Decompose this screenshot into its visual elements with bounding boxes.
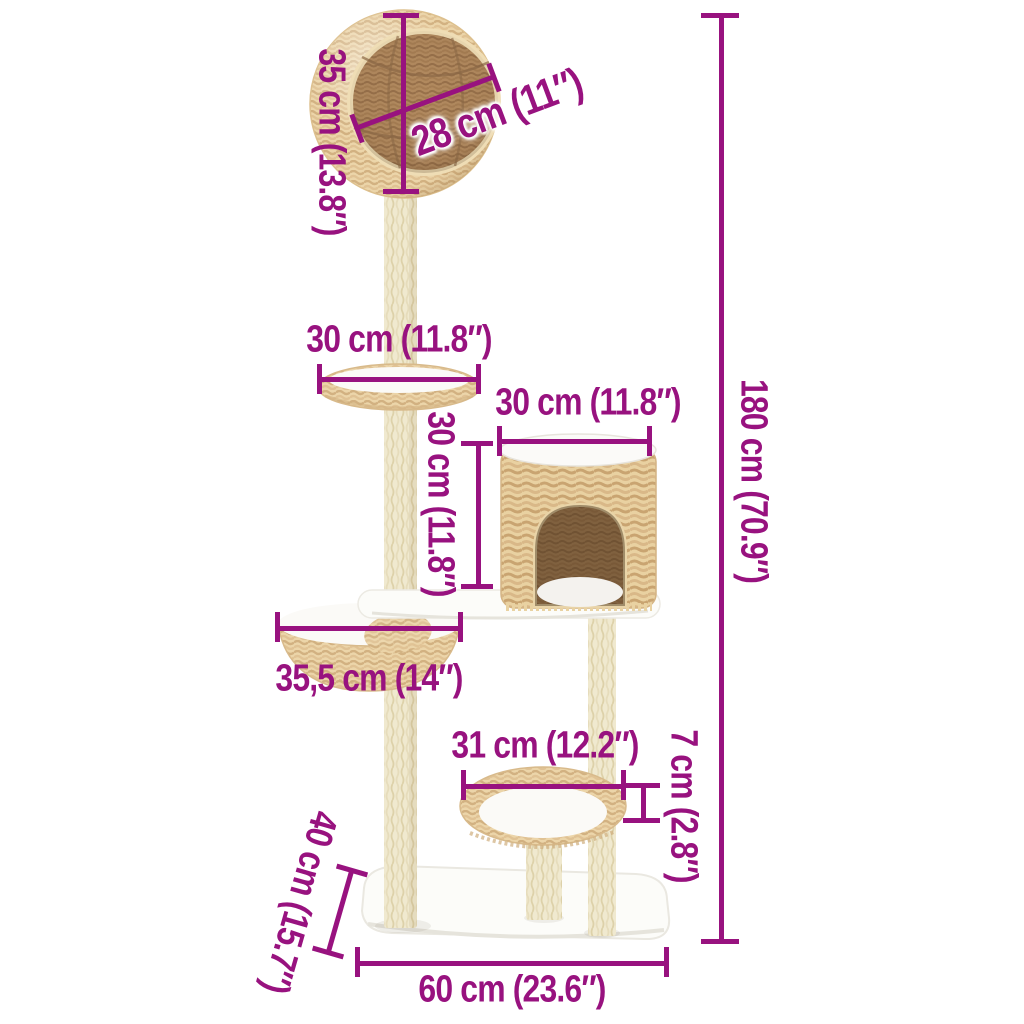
dimension-line	[463, 784, 624, 789]
dimension-tick	[317, 364, 322, 394]
dimension-tick	[664, 947, 669, 977]
cat-tree-illustration	[0, 0, 1024, 1024]
dimension-tick	[275, 612, 280, 642]
dimension-label-bottom-bed-height: 7 cm (2.8″)	[662, 729, 705, 882]
scratching-post-small	[526, 840, 562, 920]
dimension-line	[401, 15, 406, 193]
dimension-line	[500, 439, 650, 444]
dimension-tick	[701, 13, 739, 18]
dimension-tick	[623, 783, 660, 788]
dimension-tick	[647, 426, 652, 456]
dimension-tick	[355, 947, 360, 977]
dimension-line	[320, 377, 478, 382]
dimension-label-top-tray-width: 30 cm (11.8″)	[306, 319, 491, 362]
dimension-line	[641, 786, 646, 822]
product-dimension-diagram: 35 cm (13.8″) 28 cm (11″) 30 cm (11.8″) …	[0, 0, 1024, 1024]
bottom-bed	[460, 767, 626, 847]
dimension-line	[357, 961, 667, 966]
dimension-label-total-height: 180 cm (70.9″)	[732, 379, 775, 583]
dimension-tick	[461, 584, 493, 589]
dimension-tick	[383, 13, 419, 18]
dimension-tick	[623, 818, 660, 823]
dimension-tick	[701, 939, 739, 944]
dimension-line	[719, 15, 724, 943]
dimension-tick	[461, 441, 493, 446]
dimension-label-house-width: 30 cm (11.8″)	[495, 382, 680, 425]
dimension-tick	[497, 426, 502, 456]
top-tray-platform	[318, 364, 480, 410]
dimension-line	[476, 443, 481, 589]
dimension-label-basket-width: 35,5 cm (14″)	[275, 658, 462, 701]
dimension-label-ball-height: 35 cm (13.8″)	[310, 48, 353, 235]
dimension-label-bottom-bed-width: 31 cm (12.2″)	[451, 725, 638, 768]
dimension-label-house-height: 30 cm (11.8″)	[419, 411, 462, 596]
cat-condo-house	[500, 434, 656, 608]
dimension-tick	[461, 770, 466, 800]
dimension-line	[277, 626, 461, 631]
scratching-post-main	[384, 192, 417, 928]
dimension-tick	[476, 364, 481, 394]
dimension-tick	[458, 612, 463, 642]
house-cushion	[537, 577, 623, 607]
dimension-label-base-width: 60 cm (23.6″)	[418, 969, 605, 1012]
dimension-tick	[383, 189, 419, 194]
scratching-post-right	[588, 606, 616, 936]
